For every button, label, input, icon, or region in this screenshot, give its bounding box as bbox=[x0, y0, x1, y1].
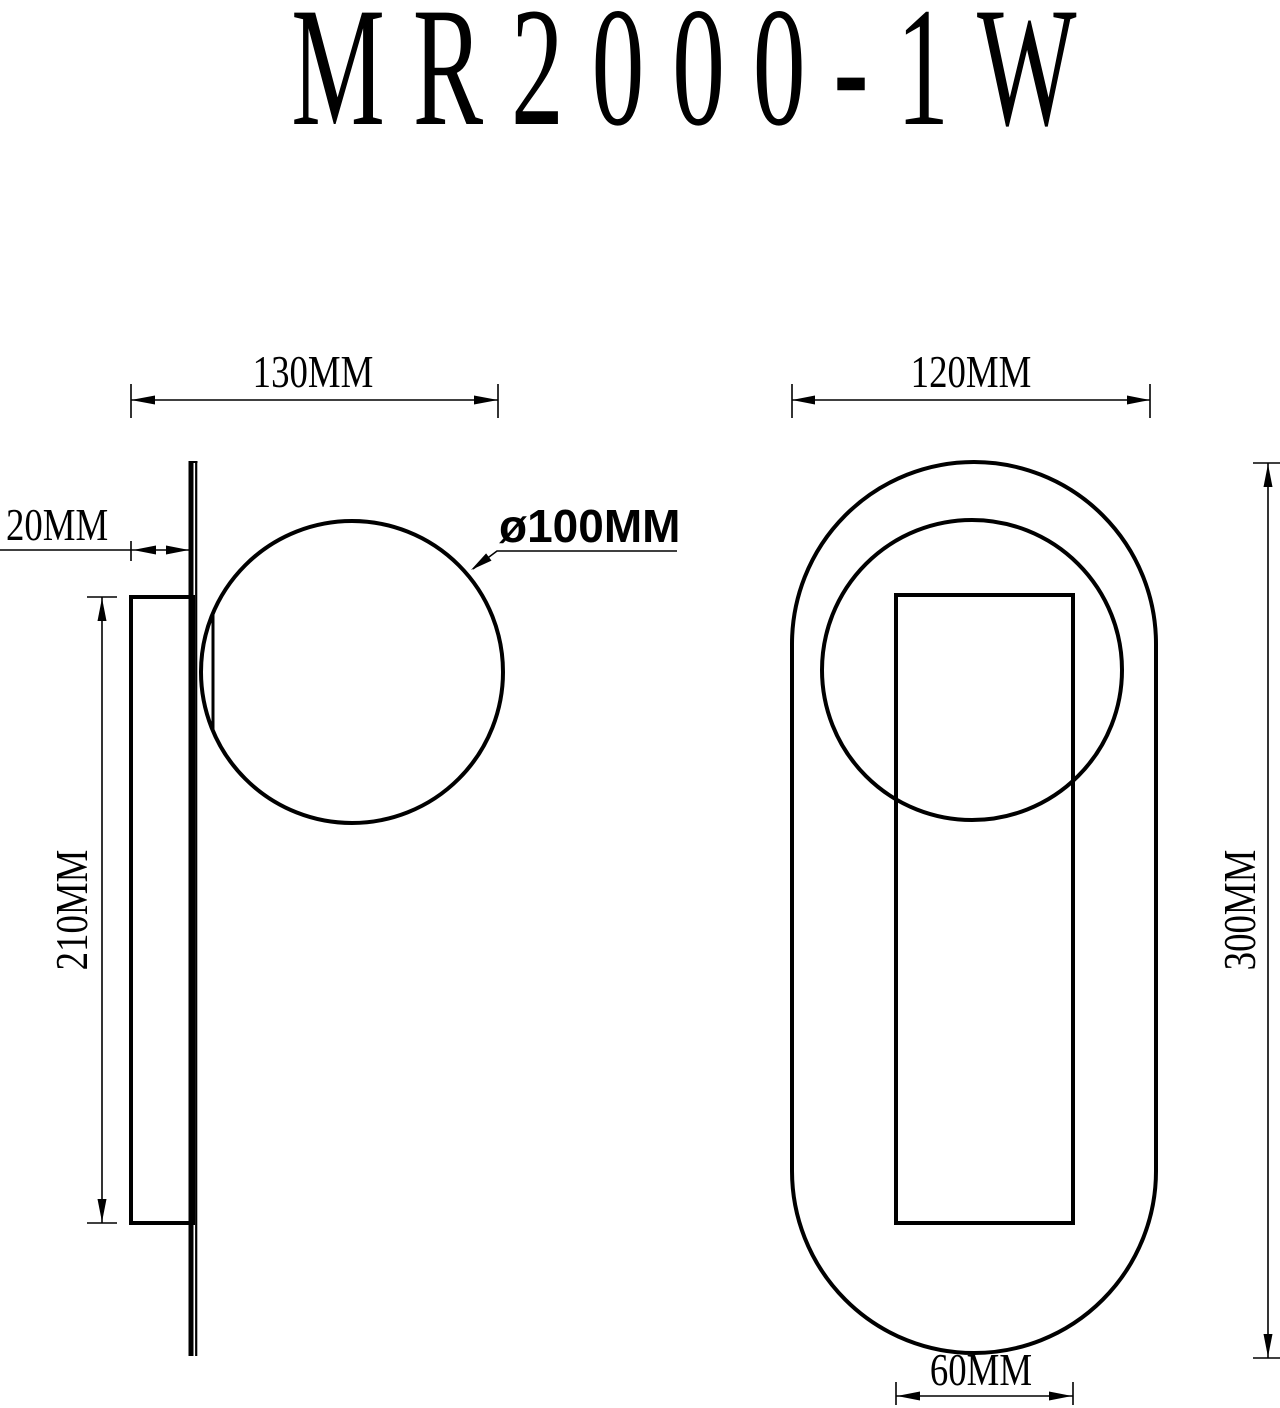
front-globe-outline bbox=[822, 520, 1122, 820]
technical-drawing-canvas: MR2000-1W bbox=[0, 0, 1280, 1408]
front-view bbox=[792, 384, 1280, 1405]
side-plate-depth-label: 20MM bbox=[6, 502, 134, 548]
front-overall-width-label: 120MM bbox=[896, 349, 1047, 395]
side-globe-diameter-label: ø100MM bbox=[499, 503, 680, 549]
side-globe-outline bbox=[201, 521, 503, 823]
drawing-linework bbox=[0, 0, 1280, 1408]
side-plate-height-label: 210MM bbox=[49, 835, 95, 986]
side-globe-diameter-leader bbox=[471, 551, 677, 570]
front-inner-plate-width-label: 60MM bbox=[917, 1347, 1045, 1393]
front-overall-height-label: 300MM bbox=[1217, 835, 1263, 986]
front-inner-plate-outline bbox=[896, 595, 1073, 1223]
side-overall-depth-label: 130MM bbox=[238, 349, 389, 395]
side-backplate-outline bbox=[131, 597, 193, 1223]
